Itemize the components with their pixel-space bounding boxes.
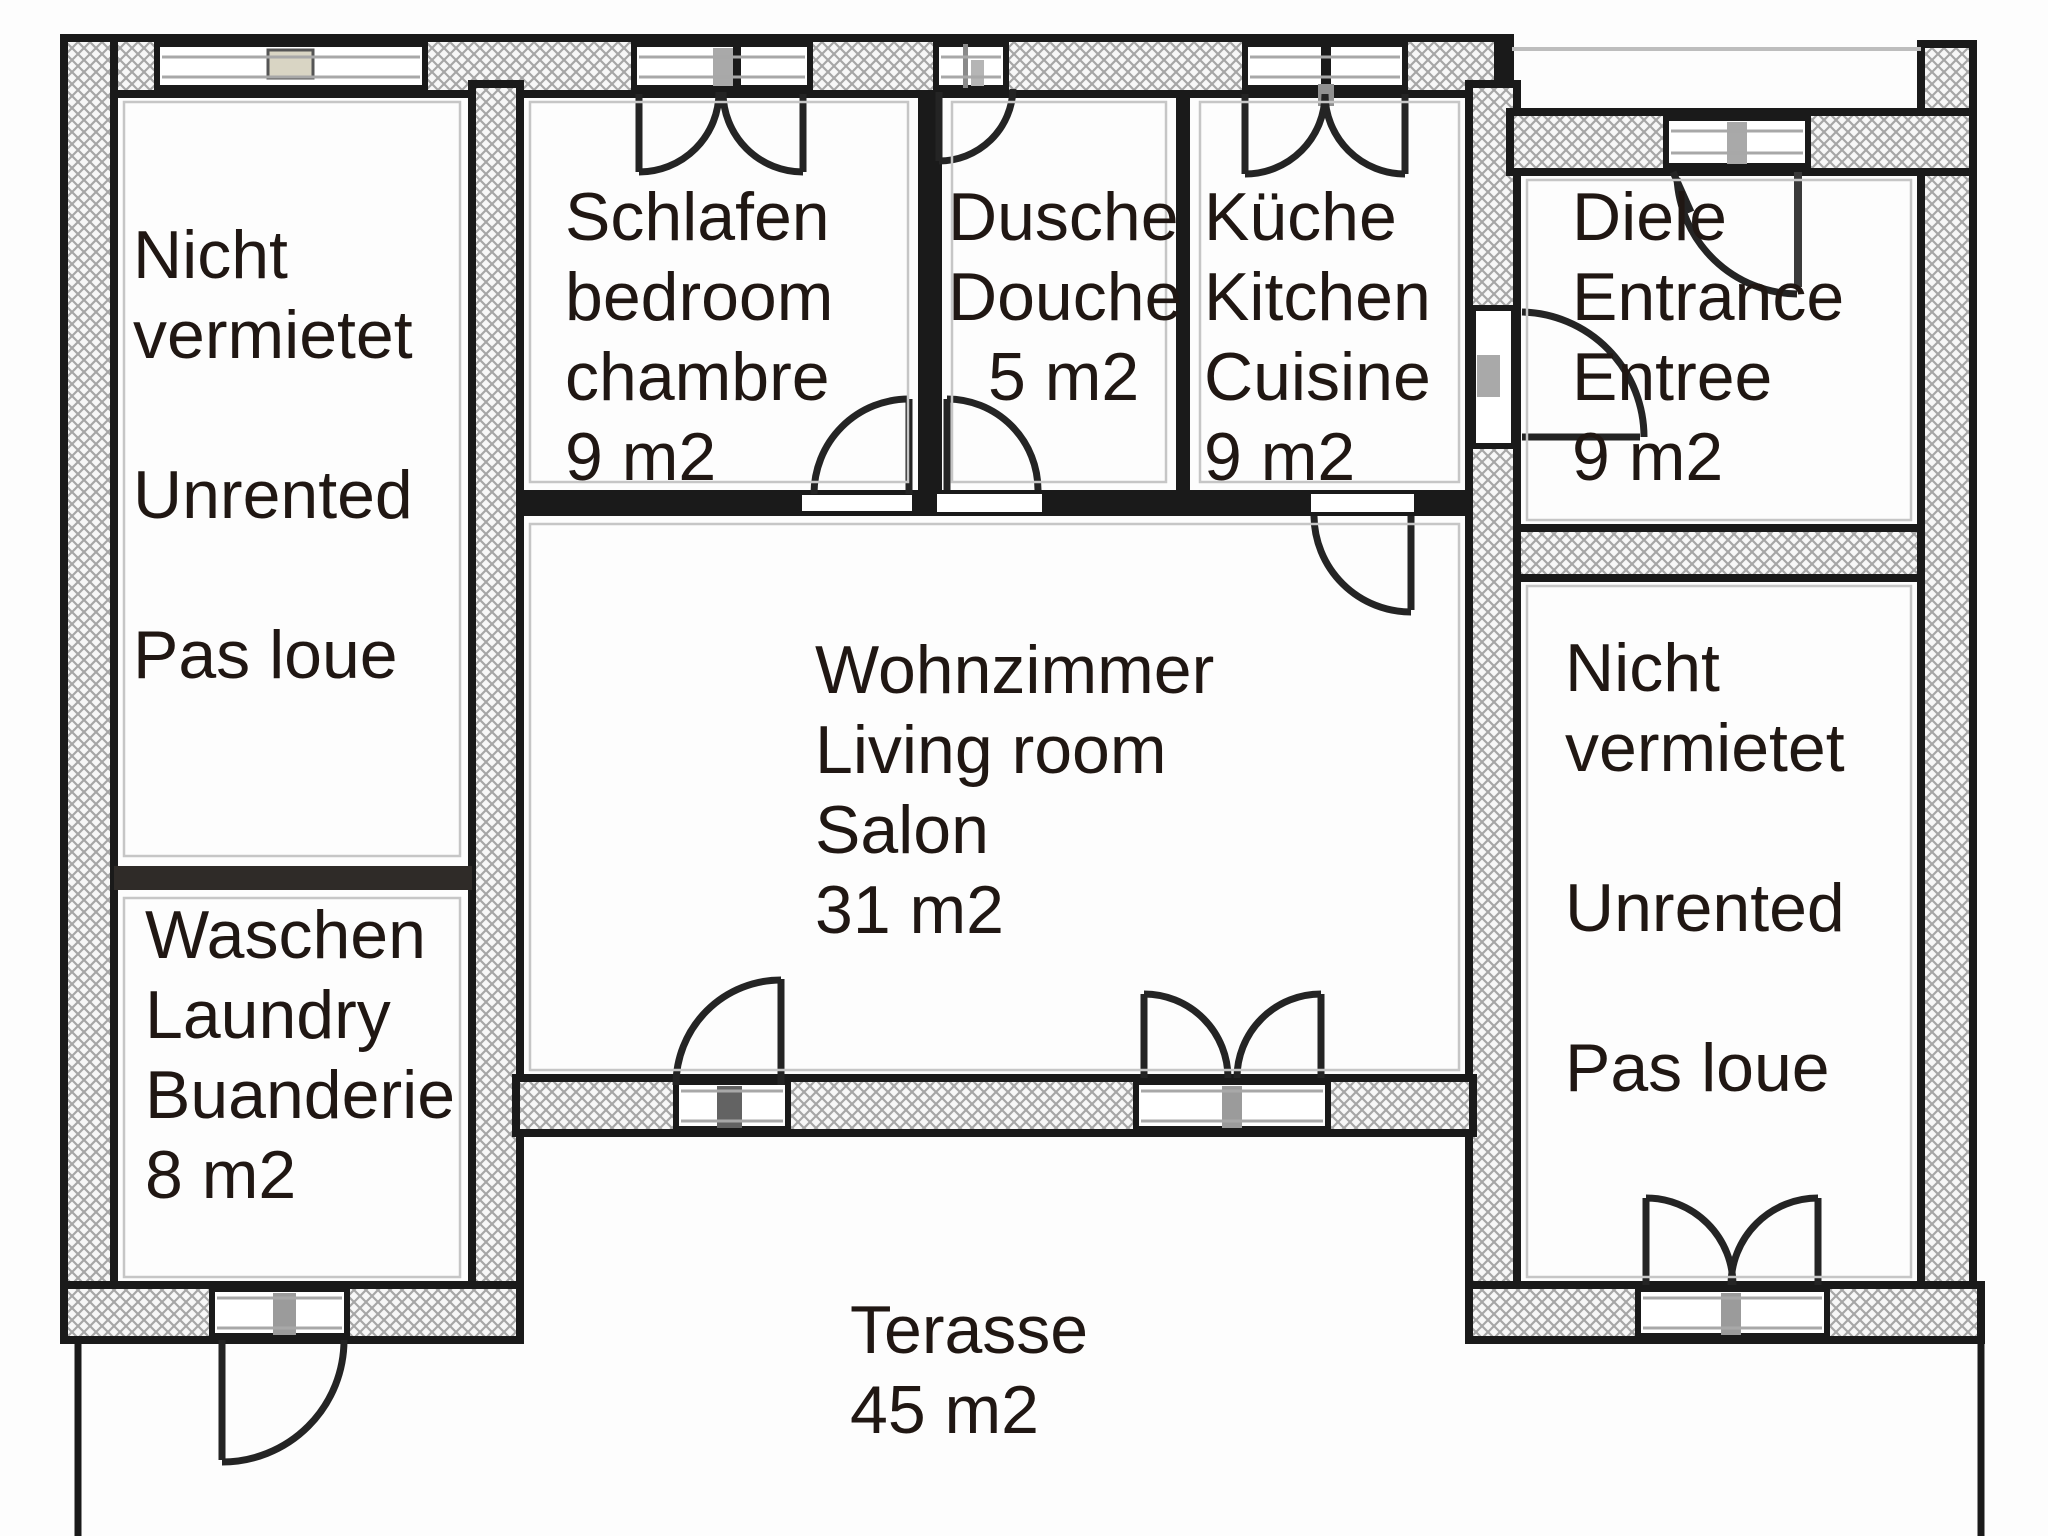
svg-text:Entrance: Entrance [1572,259,1844,335]
svg-text:Nicht: Nicht [1565,630,1720,706]
svg-text:Waschen: Waschen [145,897,426,973]
svg-text:Terasse: Terasse [850,1292,1088,1368]
svg-text:45 m2: 45 m2 [850,1372,1039,1448]
svg-text:Schlafen: Schlafen [565,179,830,255]
svg-text:Salon: Salon [815,792,989,868]
svg-text:31 m2: 31 m2 [815,872,1004,948]
svg-text:bedroom: bedroom [565,259,833,335]
svg-text:9 m2: 9 m2 [565,419,716,495]
svg-text:Unrented: Unrented [133,457,413,533]
svg-text:chambre: chambre [565,339,830,415]
svg-text:Dusche: Dusche [948,179,1179,255]
svg-text:Nicht: Nicht [133,217,288,293]
svg-text:Douche: Douche [948,259,1182,335]
svg-text:Living room: Living room [815,712,1167,788]
svg-text:Kitchen: Kitchen [1204,259,1431,335]
svg-text:Entree: Entree [1572,339,1772,415]
svg-text:vermietet: vermietet [133,297,413,373]
svg-text:5 m2: 5 m2 [988,339,1139,415]
svg-text:Wohnzimmer: Wohnzimmer [815,632,1214,708]
svg-text:Pas loue: Pas loue [133,617,398,693]
svg-text:9 m2: 9 m2 [1572,419,1723,495]
svg-text:Cuisine: Cuisine [1204,339,1431,415]
svg-text:8 m2: 8 m2 [145,1137,296,1213]
svg-text:Diele: Diele [1572,179,1727,255]
svg-text:Buanderie: Buanderie [145,1057,455,1133]
svg-text:9 m2: 9 m2 [1204,419,1355,495]
svg-text:Küche: Küche [1204,179,1397,255]
svg-text:vermietet: vermietet [1565,710,1845,786]
svg-text:Pas loue: Pas loue [1565,1030,1830,1106]
svg-text:Unrented: Unrented [1565,870,1845,946]
svg-text:Laundry: Laundry [145,977,391,1053]
